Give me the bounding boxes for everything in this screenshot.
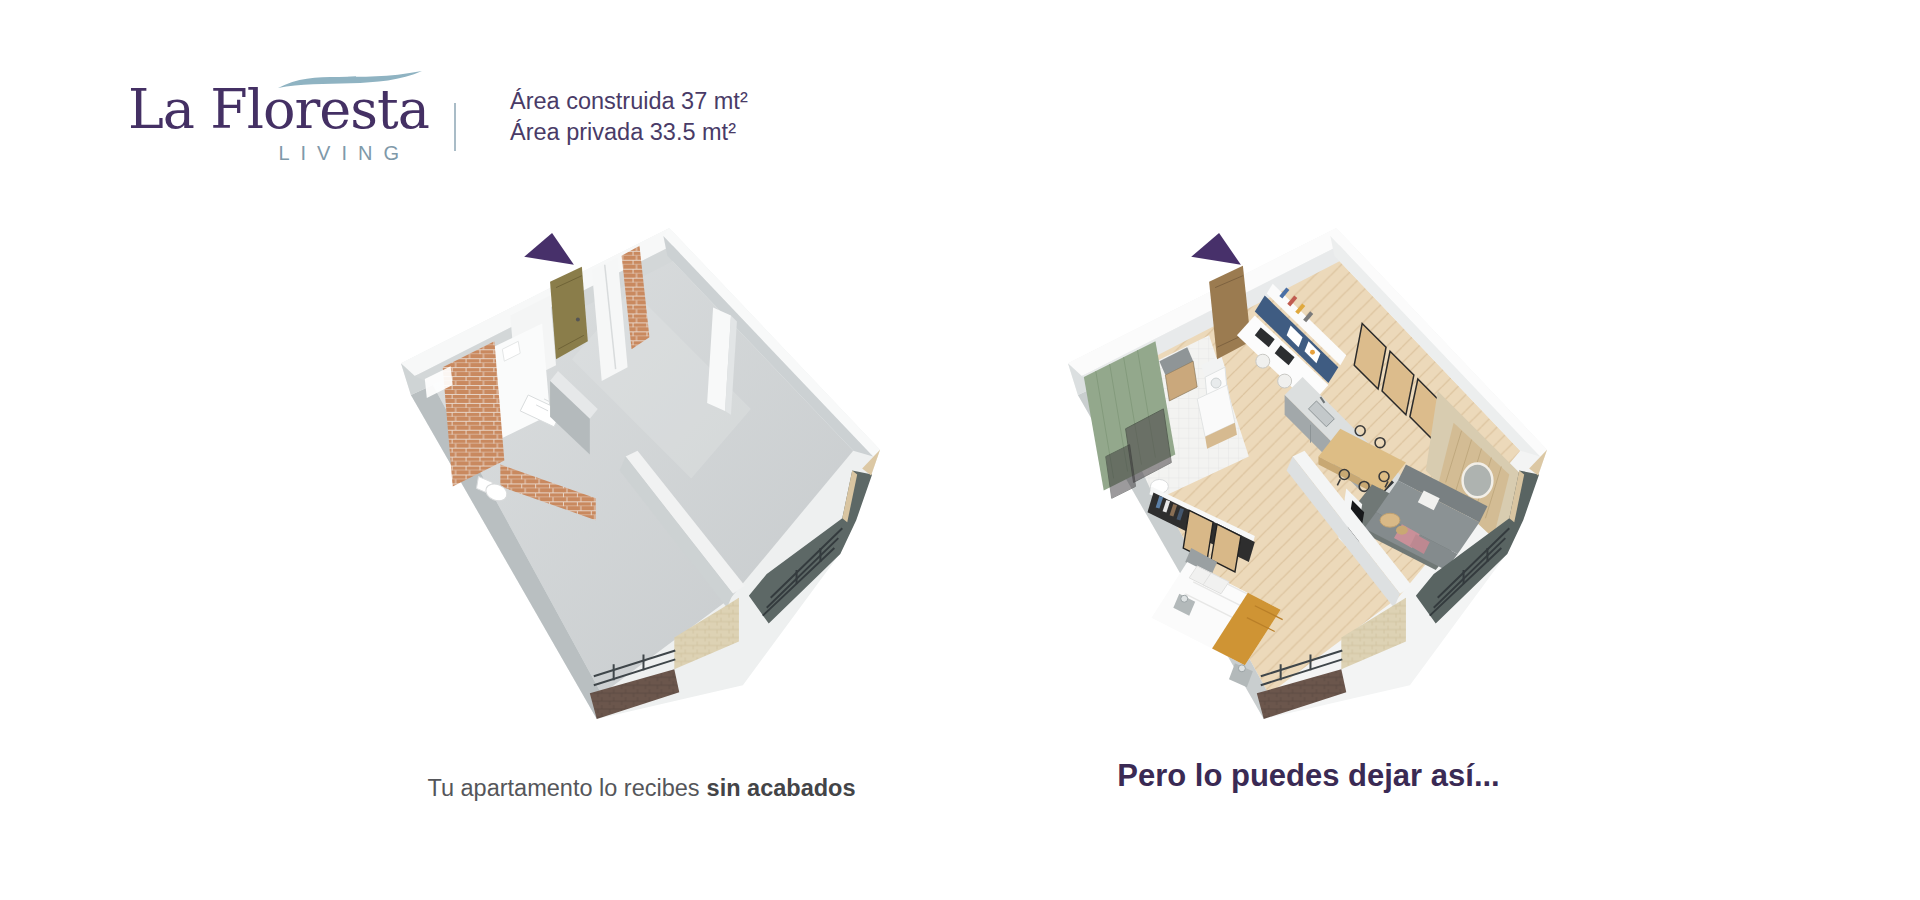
caption-furnished: Pero lo puedes dejar así...: [1060, 758, 1557, 794]
brand-logo: La Floresta LIVING: [128, 70, 413, 170]
round-mirror: [1463, 464, 1493, 498]
flyer-page: La Floresta LIVING Área construida 37 mt…: [0, 0, 1920, 900]
washer-door: [1211, 378, 1221, 388]
area-built-label: Área construida 37 mt²: [510, 86, 748, 117]
coffee-table-2: [1396, 526, 1408, 535]
view-direction-icon: [1191, 233, 1241, 265]
brick-wall-left: [443, 341, 505, 486]
brand-subtitle: LIVING: [278, 142, 410, 165]
coffee-table: [1380, 513, 1400, 527]
wave-icon: [276, 66, 426, 92]
area-private-label: Área privada 33.5 mt²: [510, 117, 748, 148]
floorplan-furnished: [1060, 220, 1557, 727]
caption-unfinished: Tu apartamento lo recibessin acabados: [393, 775, 890, 802]
desk-chair-2: [1278, 374, 1292, 388]
header-divider: [454, 103, 456, 151]
view-direction-icon: [524, 233, 574, 265]
bedside-lamp-2: [1238, 665, 1245, 672]
caption-unfinished-text: Tu apartamento lo recibes: [427, 775, 699, 801]
area-info: Área construida 37 mt² Área privada 33.5…: [510, 86, 748, 148]
bedside-lamp: [1181, 595, 1188, 602]
desk-chair: [1256, 354, 1270, 368]
floorplan-unfinished: [393, 220, 890, 727]
floorplan-furnished-drawing: [1060, 220, 1557, 727]
poster-dot: [1310, 350, 1315, 355]
door-handle: [576, 317, 580, 321]
caption-unfinished-bold: sin acabados: [707, 775, 856, 801]
floorplan-unfinished-drawing: [393, 220, 890, 727]
